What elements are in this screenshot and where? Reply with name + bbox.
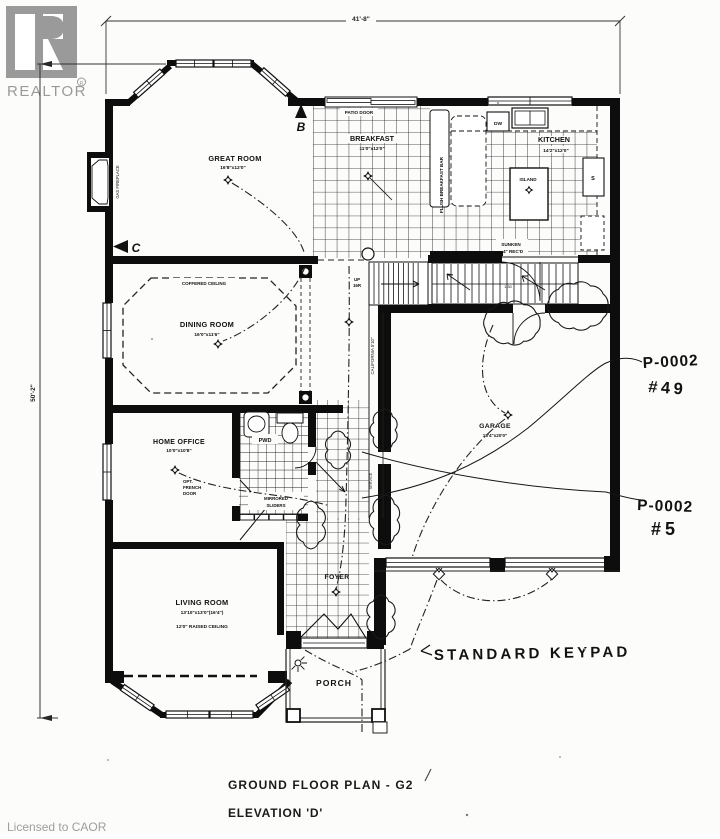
svg-text:UP: UP	[354, 277, 360, 282]
svg-text:P-0002: P-0002	[642, 352, 699, 372]
svg-text:FLUSH BREAKFAST BAR: FLUSH BREAKFAST BAR	[439, 156, 444, 213]
svg-text:OPT.: OPT.	[183, 479, 193, 484]
svg-text:14'2"x12'0": 14'2"x12'0"	[543, 148, 569, 154]
svg-text:MIRRORED: MIRRORED	[264, 496, 288, 501]
svg-text:DINING ROOM: DINING ROOM	[180, 320, 234, 329]
svg-text:18'4"x20'0": 18'4"x20'0"	[483, 433, 507, 438]
svg-text:HOME OFFICE: HOME OFFICE	[153, 439, 205, 446]
svg-text:SUNKEN: SUNKEN	[501, 242, 521, 247]
svg-text:KITCHEN: KITCHEN	[538, 135, 570, 144]
svg-text:Licensed to CAOR: Licensed to CAOR	[7, 820, 107, 834]
svg-text:50'-2": 50'-2"	[30, 384, 37, 402]
svg-text:FOYER: FOYER	[325, 574, 350, 581]
svg-text:SLIDERS: SLIDERS	[266, 503, 285, 508]
svg-text:16'0"x11'6": 16'0"x11'6"	[194, 332, 219, 338]
svg-text:#49: #49	[648, 378, 687, 399]
svg-text:REALTOR: REALTOR	[7, 83, 87, 100]
svg-text:C: C	[132, 241, 141, 255]
svg-text:R: R	[80, 81, 84, 87]
svg-text:#5: #5	[651, 519, 679, 539]
svg-text:1.30: 1.30	[504, 285, 511, 289]
svg-text:PATIO DOOR: PATIO DOOR	[345, 110, 374, 115]
svg-text:16'8"x12'0": 16'8"x12'0"	[220, 165, 246, 171]
svg-text:4" REC'D: 4" REC'D	[503, 249, 524, 254]
svg-text:PORCH: PORCH	[316, 678, 352, 688]
svg-text:S: S	[591, 176, 595, 182]
svg-text:16R: 16R	[353, 283, 362, 288]
svg-text:GREAT ROOM: GREAT ROOM	[208, 154, 261, 163]
svg-text:LIVING ROOM: LIVING ROOM	[176, 598, 229, 607]
svg-text:ELEVATION 'D': ELEVATION 'D'	[228, 806, 323, 820]
svg-text:12'0" RAISED CEILING: 12'0" RAISED CEILING	[176, 624, 228, 630]
svg-text:DOOR: DOOR	[183, 491, 197, 496]
svg-text:SERVICE: SERVICE	[369, 472, 373, 489]
svg-text:B: B	[297, 120, 306, 134]
svg-text:10'0"x10'8": 10'0"x10'8"	[166, 448, 192, 454]
svg-text:STANDARD KEYPAD: STANDARD KEYPAD	[434, 644, 631, 664]
svg-text:13'10"x13'0"(16'4"): 13'10"x13'0"(16'4")	[181, 610, 224, 616]
svg-text:DW: DW	[494, 121, 502, 127]
svg-text:BREAKFAST: BREAKFAST	[350, 134, 395, 143]
svg-text:11'0"x12'0": 11'0"x12'0"	[359, 146, 384, 152]
svg-text:P-0002: P-0002	[637, 497, 694, 516]
svg-text:ISLAND: ISLAND	[519, 177, 537, 182]
svg-text:PWD: PWD	[259, 438, 272, 444]
svg-text:CALIFORNIA 5'10": CALIFORNIA 5'10"	[370, 337, 375, 374]
svg-text:COFFERED CEILING: COFFERED CEILING	[182, 281, 227, 286]
svg-text:41'-8": 41'-8"	[352, 16, 370, 23]
svg-text:FRENCH: FRENCH	[183, 485, 201, 490]
svg-text:GAS FIREPLACE: GAS FIREPLACE	[115, 165, 120, 198]
svg-text:GROUND FLOOR PLAN - G2: GROUND FLOOR PLAN - G2	[228, 778, 414, 792]
